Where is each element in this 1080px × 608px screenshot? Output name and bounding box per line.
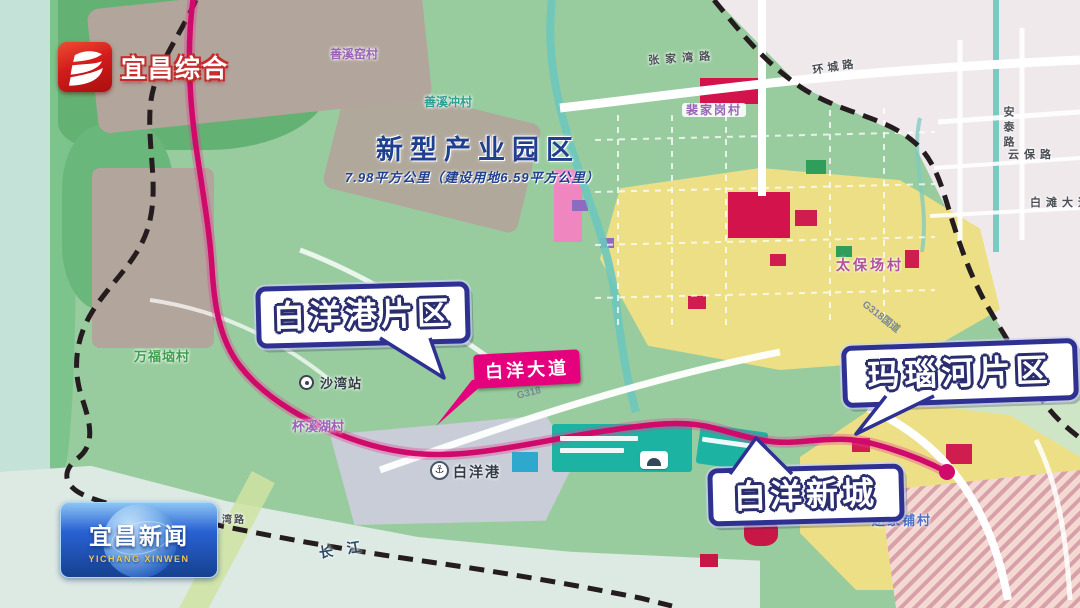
sanxia-tv-logo-icon — [58, 42, 112, 92]
logo-swoosh — [63, 46, 107, 88]
program-subtitle: YICHANG XINWEN — [88, 554, 189, 564]
zone-tan-w — [92, 168, 214, 348]
map-block-red — [770, 254, 786, 266]
zone-hatched-se — [880, 470, 1080, 608]
map-block-red — [852, 438, 870, 452]
channel-name: 宜昌综合 — [121, 49, 229, 85]
road-badge-baiyang-avenue: 白洋大道 — [473, 349, 581, 389]
map-label: 裴家岗村 — [682, 103, 746, 117]
metro-station-icon — [299, 375, 314, 390]
callout-baiyang-newtown-label: 白洋新城 — [734, 477, 879, 513]
map-block-cyan — [512, 452, 538, 472]
map-block-green — [806, 160, 826, 174]
map-block-red — [688, 296, 706, 309]
terminal-sign — [560, 448, 624, 453]
map-label: 杯溪湖村 — [292, 420, 344, 433]
map-block-purple — [572, 200, 588, 211]
map-block-red — [905, 250, 919, 268]
map-label: G318 — [516, 386, 542, 402]
zone-subtitle: 7.98平方公里（建设用地6.59平方公里） — [345, 167, 600, 186]
map-block-purple — [600, 238, 614, 248]
terminal-sign — [560, 436, 638, 441]
zone-title: 新型产业园区 — [376, 128, 580, 167]
program-title: 宜昌新闻 — [89, 517, 189, 551]
map-label: 万福垴村 — [134, 350, 190, 363]
map-block-green — [836, 246, 852, 257]
port-anchor-icon: ⚓ — [430, 461, 449, 480]
zone-port — [330, 415, 575, 525]
callout-manao-river-label: 玛瑙河片区 — [867, 354, 1053, 392]
zone-teal-terminal-2 — [696, 423, 769, 472]
map-block-red — [946, 444, 972, 464]
map-label: 沙湾站 — [320, 377, 362, 390]
map-block-red — [728, 192, 790, 238]
map-block-red — [700, 554, 718, 567]
callout-baiyang-newtown: 白洋新城 — [707, 463, 904, 526]
ferry-terminal-icon — [640, 451, 668, 469]
callout-baiyang-port-label: 白洋港片区 — [273, 297, 454, 334]
callout-baiyang-port: 白洋港片区 — [255, 281, 471, 349]
program-badge: 宜昌新闻 YICHANG XINWEN — [60, 502, 218, 578]
map-block-red — [700, 78, 760, 104]
zone-yellow-main — [600, 168, 1000, 370]
map-block-red — [795, 210, 817, 226]
tv-frame: 善溪窑村善溪冲村张家湾路环城路裴家岗村安泰路云保路白滩大道太保场村万福垴村沙湾站… — [0, 0, 1080, 608]
map-label: 张家湾路 — [648, 51, 717, 67]
callout-manao-river: 玛瑙河片区 — [841, 338, 1079, 408]
channel-watermark: 宜昌综合 — [58, 42, 229, 92]
